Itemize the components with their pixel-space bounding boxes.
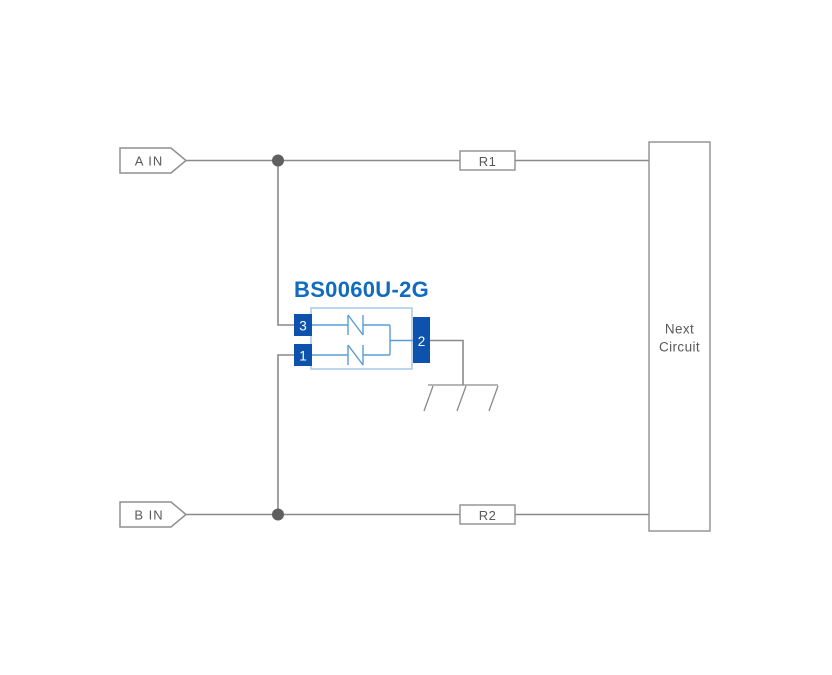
wire-a-junction-to-pin3 bbox=[278, 161, 294, 326]
resistor-r2: R2 bbox=[460, 505, 515, 524]
junction-dot-bottom bbox=[272, 509, 284, 521]
resistor-r1: R1 bbox=[460, 151, 515, 170]
ground-hatch-1 bbox=[424, 386, 433, 411]
pin-3-number: 3 bbox=[299, 319, 307, 334]
b-in-tag: B IN bbox=[120, 502, 186, 527]
component-body bbox=[311, 308, 412, 369]
chassis-ground-icon bbox=[424, 385, 498, 411]
tvs-component: BS0060U-2G bbox=[294, 277, 430, 369]
ground-hatch-3 bbox=[489, 386, 498, 411]
pin-2: 2 bbox=[413, 317, 430, 363]
resistor-r2-label: R2 bbox=[479, 508, 497, 523]
a-in-tag: A IN bbox=[120, 148, 186, 173]
pin-1: 1 bbox=[294, 344, 312, 366]
next-circuit-box bbox=[649, 142, 710, 531]
pin-2-number: 2 bbox=[418, 334, 426, 349]
next-circuit-block: Next Circuit bbox=[649, 142, 710, 531]
schematic-canvas: A IN B IN R1 R2 Next Circuit BS0060U-2G bbox=[0, 0, 832, 675]
circuit-diagram: A IN B IN R1 R2 Next Circuit BS0060U-2G bbox=[0, 0, 832, 675]
a-in-label: A IN bbox=[135, 154, 164, 169]
pin-3: 3 bbox=[294, 314, 312, 336]
wire-b-junction-to-pin1 bbox=[278, 355, 294, 515]
next-circuit-label-line2: Circuit bbox=[659, 340, 700, 355]
ground-hatch-2 bbox=[457, 386, 466, 411]
next-circuit-label-line1: Next bbox=[665, 322, 694, 337]
wire-pin2-to-ground bbox=[430, 341, 463, 386]
junction-dot-top bbox=[272, 155, 284, 167]
b-in-label: B IN bbox=[134, 508, 163, 523]
component-part-number: BS0060U-2G bbox=[294, 277, 429, 302]
resistor-r1-label: R1 bbox=[479, 154, 497, 169]
pin-1-number: 1 bbox=[299, 349, 307, 364]
